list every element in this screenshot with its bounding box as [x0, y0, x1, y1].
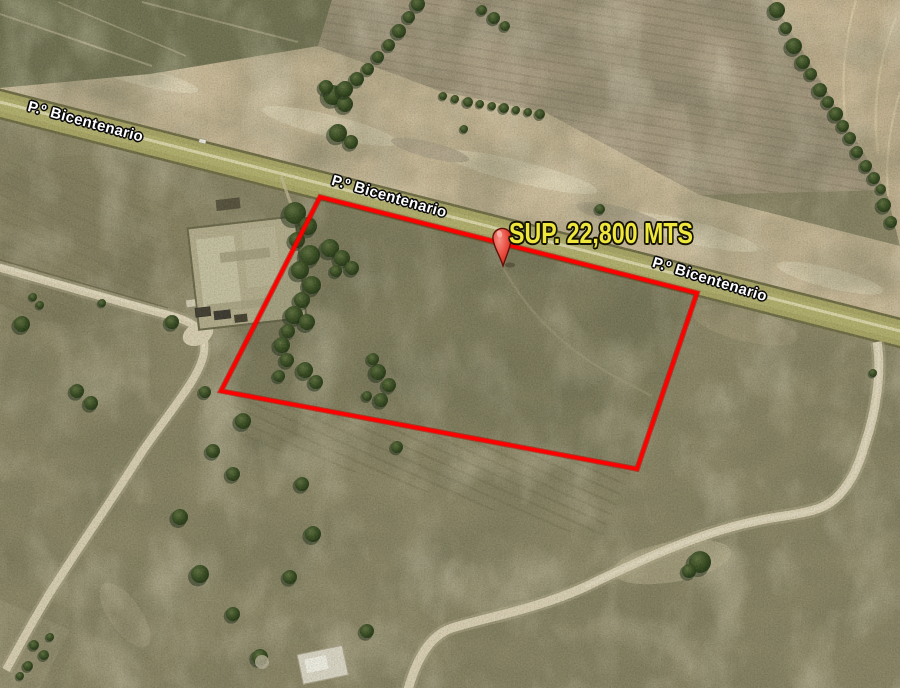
- satellite-map[interactable]: P.º Bicentenario P.º Bicentenario P.º Bi…: [0, 0, 900, 688]
- map-canvas: [0, 0, 900, 688]
- parcel-surface-label[interactable]: SUP. 22,800 MTS: [509, 220, 693, 249]
- image-grain-light: [0, 0, 900, 688]
